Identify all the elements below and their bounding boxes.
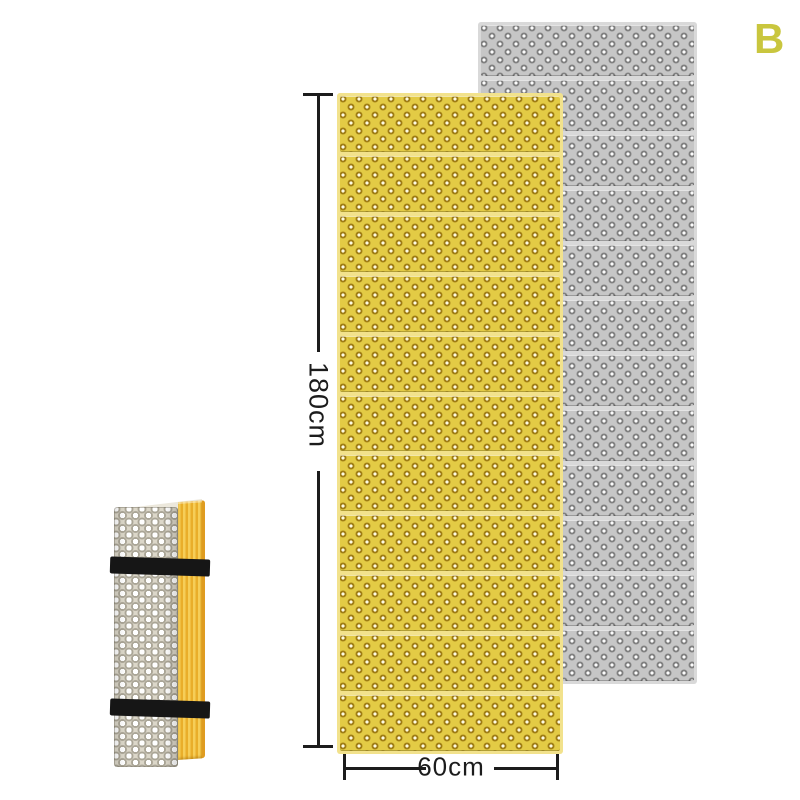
dimension-line-segment — [317, 96, 320, 352]
mat-segment — [340, 575, 560, 631]
height-dimension: 180cm — [302, 93, 335, 748]
mat-segment — [340, 695, 560, 751]
dimension-line-segment — [317, 471, 320, 745]
mat-segment — [481, 25, 694, 76]
dimension-end-cap-bottom — [303, 745, 333, 748]
mat-segment — [340, 635, 560, 691]
mat-segment — [340, 396, 560, 452]
mat-segment — [340, 515, 560, 571]
width-dimension-label: 60cm — [417, 752, 485, 783]
folded-mat-side-layers — [178, 500, 205, 760]
height-dimension-label: 180cm — [303, 362, 334, 448]
dimension-line-segment — [494, 767, 556, 770]
mat-segment — [340, 276, 560, 332]
width-dimension: 60cm — [343, 753, 559, 781]
mat-segment — [340, 156, 560, 212]
yellow-mat — [337, 93, 563, 754]
folded-mat — [112, 498, 208, 770]
mat-segment — [340, 336, 560, 392]
mat-segment — [340, 216, 560, 272]
mat-segment — [340, 455, 560, 511]
folded-mat-front-face — [114, 507, 178, 767]
product-photo: 180cm 60cm B — [0, 0, 800, 800]
mat-segment — [340, 96, 560, 152]
variant-badge: B — [754, 18, 784, 60]
folded-mat-strap-top — [110, 556, 210, 576]
dimension-line-segment — [346, 767, 426, 770]
dimension-end-bar-right — [556, 754, 559, 780]
folded-mat-strap-bottom — [110, 698, 210, 718]
